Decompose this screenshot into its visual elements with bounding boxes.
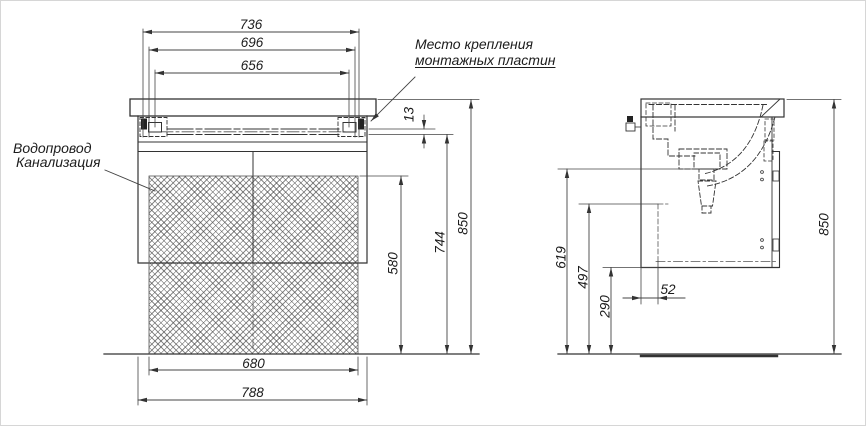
dim-497: 497	[576, 261, 591, 295]
dim-736: 736	[143, 17, 359, 32]
front-dimensions	[105, 29, 479, 405]
dim-580: 580	[386, 247, 401, 281]
dim-290: 290	[598, 290, 613, 324]
dim-656: 656	[155, 58, 349, 73]
dim-744: 744	[433, 226, 448, 260]
mounting-plate-left	[140, 118, 167, 137]
dim-788: 788	[138, 385, 367, 400]
label-mounting-line1: Место крепления	[415, 37, 533, 52]
front-arrowheads	[138, 30, 473, 403]
dim-680: 680	[149, 356, 358, 371]
dim-850-side: 850	[817, 208, 832, 242]
dim-696: 696	[149, 35, 355, 50]
vanity-technical-drawing: 736 696 656 Место крепления монтажных пл…	[0, 0, 866, 426]
siphon-trap	[694, 153, 720, 213]
water-leader-line	[105, 170, 155, 191]
dim-850-front: 850	[456, 207, 471, 241]
mounting-rail	[161, 129, 345, 135]
dim-619: 619	[554, 241, 569, 275]
mounting-plate-right	[338, 118, 365, 137]
label-sewerage: Канализация	[16, 155, 100, 170]
dim-13: 13	[402, 98, 417, 132]
cabinet-body-side	[641, 117, 779, 268]
label-mounting-line2: монтажных пластин	[415, 53, 555, 68]
countertop-front	[130, 99, 376, 116]
dim-52: 52	[653, 282, 683, 297]
front-view	[104, 99, 479, 354]
